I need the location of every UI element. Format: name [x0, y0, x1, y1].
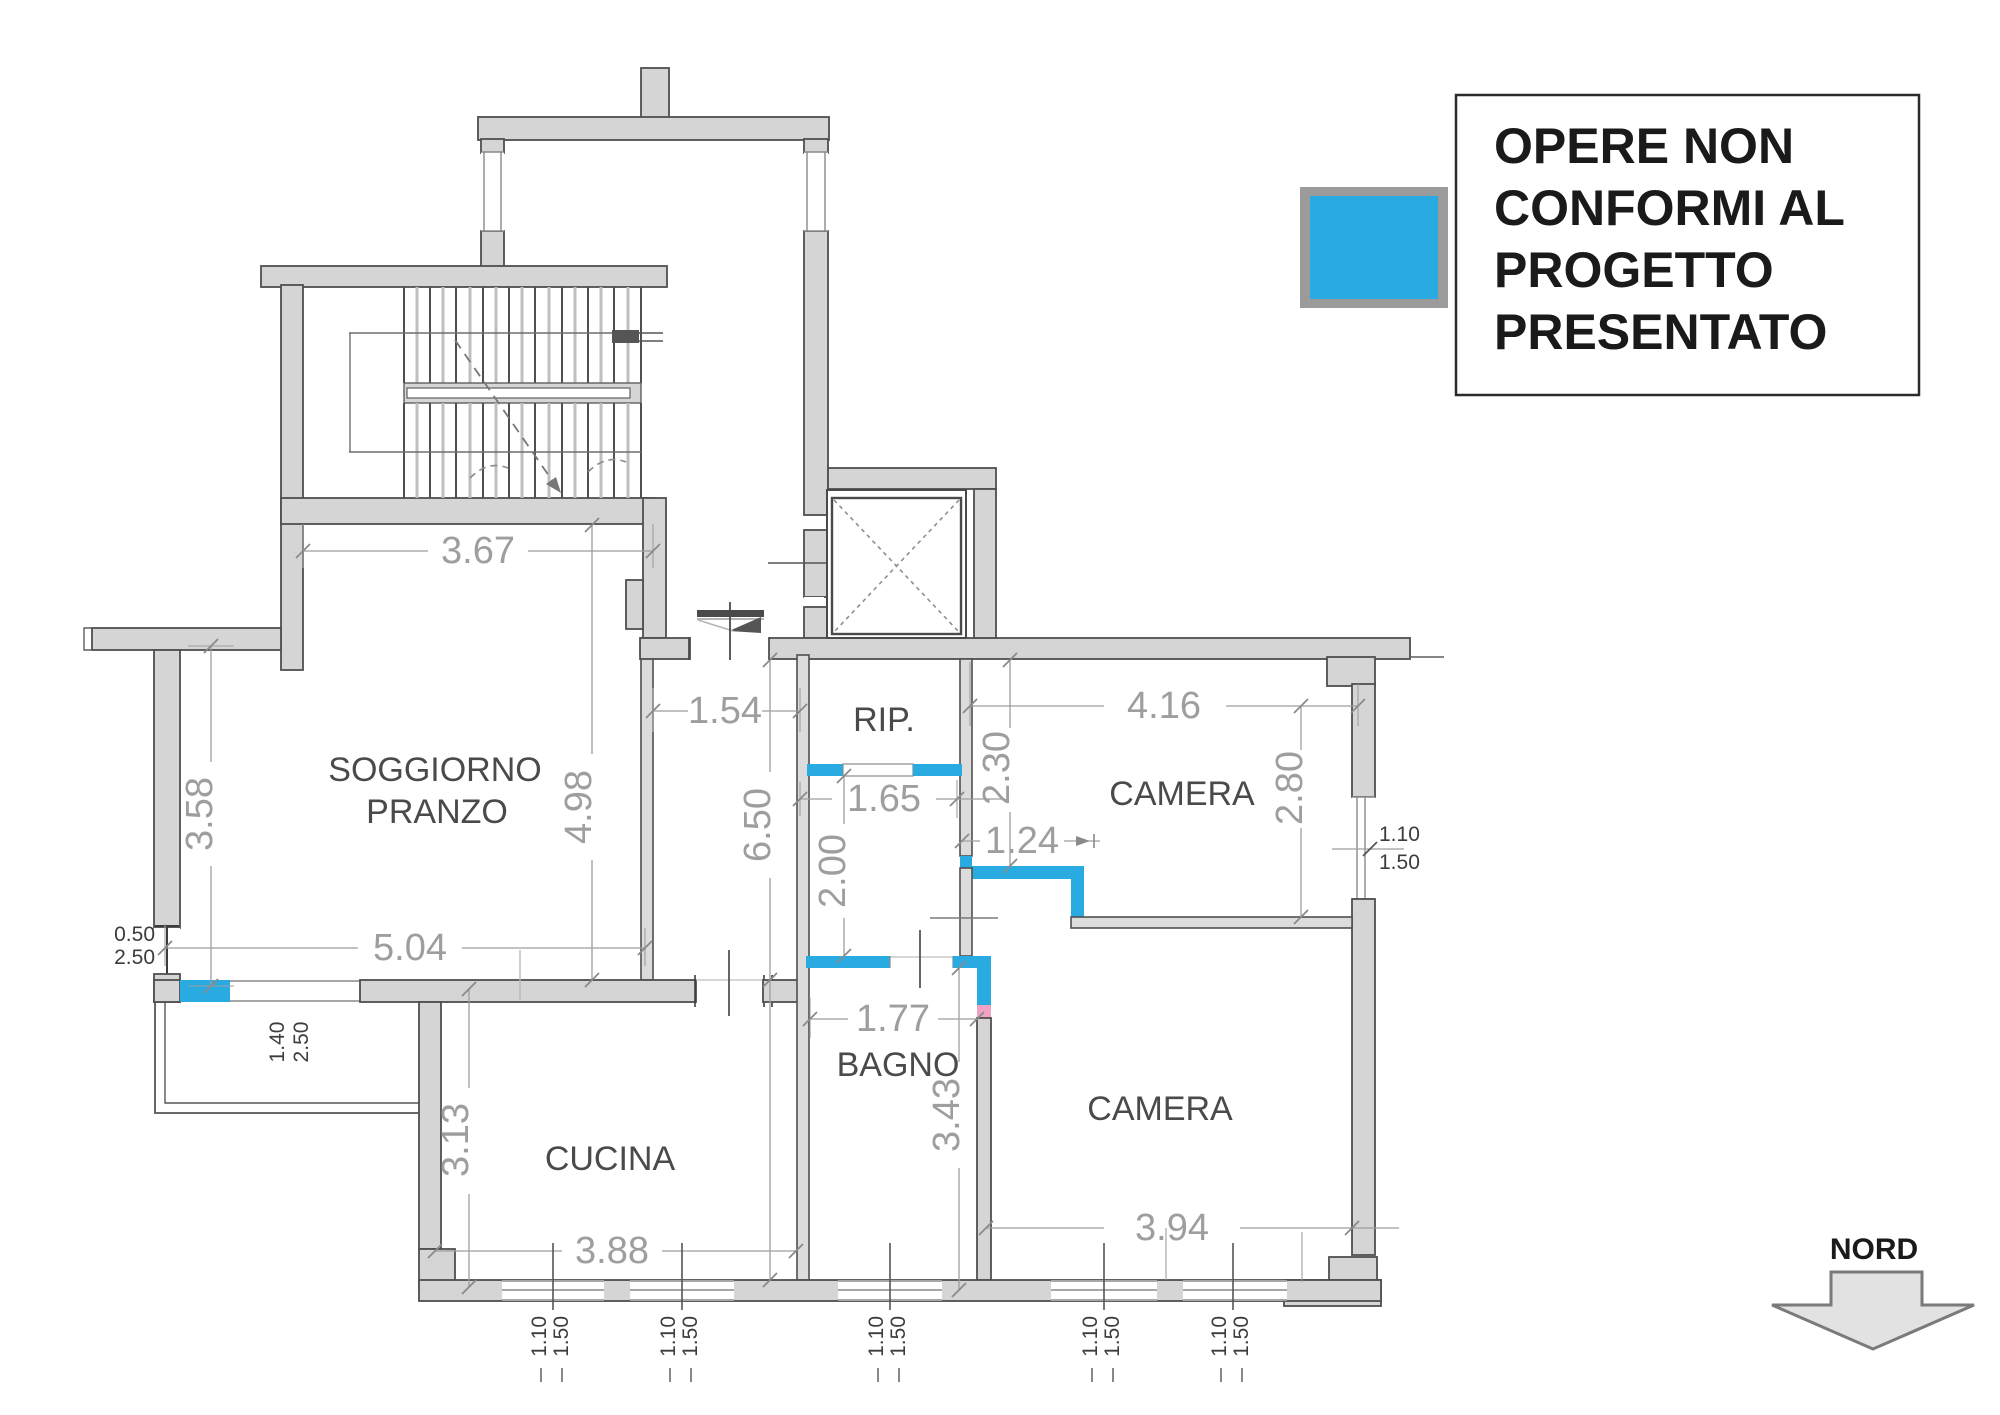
svg-text:PRESENTATO: PRESENTATO	[1494, 304, 1827, 360]
svg-text:1.50: 1.50	[1101, 1316, 1124, 1357]
svg-text:3.58: 3.58	[179, 777, 221, 851]
svg-text:3.67: 3.67	[441, 530, 515, 572]
svg-text:PRANZO: PRANZO	[366, 793, 508, 831]
svg-text:RIP.: RIP.	[853, 701, 915, 739]
svg-text:BAGNO: BAGNO	[837, 1046, 960, 1084]
svg-text:2.80: 2.80	[1269, 751, 1311, 825]
svg-text:CAMERA: CAMERA	[1109, 775, 1255, 813]
svg-text:1.50: 1.50	[679, 1316, 702, 1357]
svg-text:1.50: 1.50	[550, 1316, 573, 1357]
svg-text:1.50: 1.50	[887, 1316, 910, 1357]
svg-text:CAMERA: CAMERA	[1087, 1090, 1233, 1128]
svg-text:PROGETTO: PROGETTO	[1494, 242, 1774, 298]
svg-text:2.30: 2.30	[976, 731, 1018, 805]
svg-text:1.54: 1.54	[688, 690, 762, 732]
svg-text:1.65: 1.65	[847, 778, 921, 820]
svg-text:1.10: 1.10	[657, 1316, 680, 1357]
svg-text:2.00: 2.00	[812, 834, 854, 908]
svg-text:1.24: 1.24	[985, 820, 1059, 862]
svg-text:0.50: 0.50	[114, 923, 155, 946]
svg-text:2.50: 2.50	[114, 946, 155, 969]
svg-text:1.10: 1.10	[1208, 1316, 1231, 1357]
svg-text:NORD: NORD	[1830, 1233, 1918, 1266]
svg-text:3.88: 3.88	[575, 1230, 649, 1272]
svg-text:CONFORMI AL: CONFORMI AL	[1494, 180, 1845, 236]
svg-text:1.50: 1.50	[1379, 851, 1420, 874]
svg-text:1.10: 1.10	[1079, 1316, 1102, 1357]
svg-text:2.50: 2.50	[290, 1022, 313, 1063]
svg-text:1.10: 1.10	[1379, 823, 1420, 846]
svg-text:1.10: 1.10	[528, 1316, 551, 1357]
svg-text:1.40: 1.40	[266, 1022, 289, 1063]
svg-text:3.13: 3.13	[435, 1103, 477, 1177]
svg-text:SOGGIORNO: SOGGIORNO	[328, 751, 541, 789]
svg-text:3.94: 3.94	[1135, 1207, 1209, 1249]
svg-text:6.50: 6.50	[737, 788, 779, 862]
svg-text:OPERE NON: OPERE NON	[1494, 118, 1794, 174]
svg-text:4.16: 4.16	[1127, 685, 1201, 727]
svg-text:CUCINA: CUCINA	[545, 1140, 676, 1178]
svg-text:1.77: 1.77	[856, 998, 930, 1040]
svg-text:1.50: 1.50	[1230, 1316, 1253, 1357]
svg-text:1.10: 1.10	[865, 1316, 888, 1357]
svg-text:5.04: 5.04	[373, 927, 447, 969]
svg-text:4.98: 4.98	[558, 770, 600, 844]
svg-text:3.43: 3.43	[926, 1078, 968, 1152]
